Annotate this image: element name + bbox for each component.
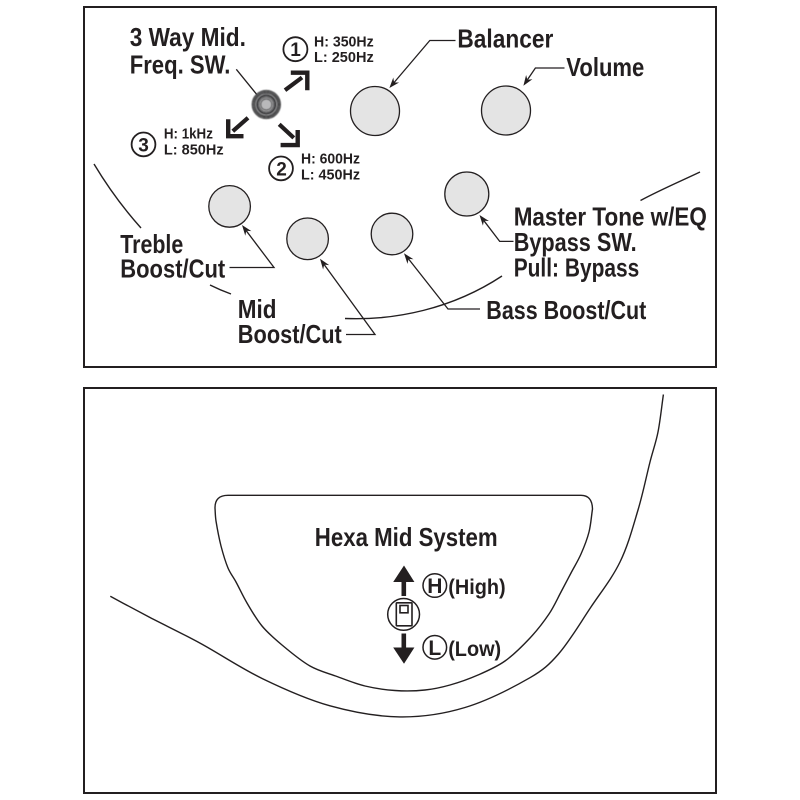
svg-text:Volume: Volume <box>566 52 644 82</box>
svg-text:Balancer: Balancer <box>457 24 553 54</box>
svg-text:Hexa Mid System: Hexa Mid System <box>315 522 498 552</box>
svg-text:Pull: Bypass: Pull: Bypass <box>514 253 640 283</box>
svg-text:L: 250Hz: L: 250Hz <box>314 49 374 66</box>
svg-text:3: 3 <box>138 135 149 156</box>
svg-text:Freq. SW.: Freq. SW. <box>130 50 231 80</box>
svg-text:Boost/Cut: Boost/Cut <box>238 319 342 349</box>
svg-text:Bass Boost/Cut: Bass Boost/Cut <box>486 295 646 325</box>
svg-text:2: 2 <box>276 159 287 180</box>
svg-text:Boost/Cut: Boost/Cut <box>120 254 225 284</box>
svg-text:H: 1kHz: H: 1kHz <box>164 126 213 143</box>
svg-text:3 Way Mid.: 3 Way Mid. <box>130 22 246 52</box>
svg-text:1: 1 <box>290 40 301 61</box>
svg-text:H: 600Hz: H: 600Hz <box>301 151 360 168</box>
svg-text:L: 450Hz: L: 450Hz <box>301 167 360 184</box>
svg-text:(High): (High) <box>448 576 506 599</box>
svg-text:(Low): (Low) <box>448 638 501 661</box>
svg-text:H: H <box>427 575 442 598</box>
svg-text:L: 850Hz: L: 850Hz <box>164 142 224 159</box>
svg-text:L: L <box>428 637 441 660</box>
